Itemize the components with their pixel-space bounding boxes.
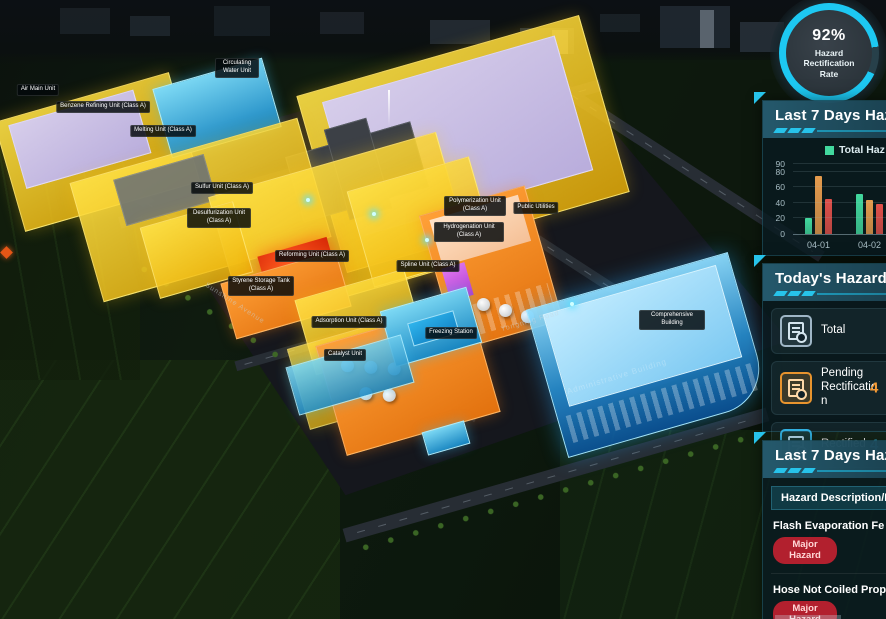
map-label-polymerization-unit[interactable]: Polymerization Unit (Class A)	[444, 196, 506, 216]
map-label-melting-unit[interactable]: Melting Unit (Class A)	[130, 125, 196, 137]
panel-header: Today's Hazard S	[763, 264, 886, 301]
slash-icon	[787, 468, 802, 473]
bar	[856, 194, 863, 234]
hazard-level-badge: Major Hazard	[773, 537, 837, 564]
slash-icon	[773, 128, 788, 133]
hazard-trend-chart: Total Haz 02040608090 04-0104-02	[763, 138, 886, 254]
panel-title: Today's Hazard S	[775, 270, 886, 287]
gridline	[793, 217, 886, 218]
header-decoration	[775, 468, 886, 473]
bar	[805, 218, 812, 234]
stat-label: Total	[821, 324, 881, 338]
light-flare	[388, 90, 390, 126]
panel-todays-hazard-statistics: Today's Hazard S Total Pending Rectifica…	[762, 263, 886, 432]
bar	[876, 204, 883, 234]
chart-y-axis: 02040608090	[763, 164, 789, 234]
y-tick-label: 20	[776, 213, 785, 223]
chart-legend[interactable]: Total Haz	[825, 144, 885, 156]
y-tick-label: 0	[780, 229, 785, 239]
slash-icon	[773, 468, 788, 473]
map-label-air-main-unit[interactable]: Air Main Unit	[17, 84, 59, 96]
slash-icon	[773, 291, 788, 296]
storage-tank	[499, 304, 512, 317]
city-building	[430, 20, 490, 44]
bar	[815, 176, 822, 234]
stat-value: 4	[870, 380, 878, 397]
map-label-sulfur-unit[interactable]: Sulfur Unit (Class A)	[191, 182, 253, 194]
panel-last-7-days-hazard-trend: Last 7 Days Haza Total Haz 02040608090 0…	[762, 100, 886, 256]
map-label-freezing-station[interactable]: Freezing Station	[425, 327, 477, 339]
hazard-description: Flash Evaporation Fe	[773, 520, 886, 532]
pending-document-icon	[780, 372, 812, 404]
gridline	[793, 202, 886, 203]
storage-tank	[477, 298, 490, 311]
hazard-description: Hose Not Coiled Prop	[773, 584, 886, 596]
bar-group: 04-01	[805, 164, 832, 234]
city-building	[130, 16, 170, 36]
slash-icon	[801, 291, 816, 296]
map-label-desulfurization-unit[interactable]: Desulfurization Unit (Class A)	[187, 208, 251, 228]
stat-row-pending-rectification[interactable]: Pending Rectification 4	[771, 361, 886, 415]
gauge-value: 92%	[812, 27, 846, 45]
x-tick-label: 04-01	[807, 240, 830, 250]
header-line	[817, 293, 886, 295]
digital-twin-dashboard: Circulating Water Unit Air Main Unit Ben…	[0, 0, 886, 619]
y-tick-label: 40	[776, 198, 785, 208]
header-line	[817, 130, 886, 132]
sparkle	[570, 302, 574, 306]
panel-last-7-days-hazard-list: Last 7 Days Haza Hazard Description/L Fl…	[762, 440, 886, 619]
map-label-catalyst-unit[interactable]: Catalyst Unit	[324, 349, 366, 361]
panel-header: Last 7 Days Haza	[763, 441, 886, 478]
map-label-adsorption-unit[interactable]: Adsorption Unit (Class A)	[311, 316, 386, 328]
city-building	[214, 6, 270, 36]
legend-swatch	[825, 146, 834, 155]
gauge-label: Hazard Rectification Rate	[797, 48, 861, 80]
y-tick-label: 60	[776, 182, 785, 192]
gridline	[793, 171, 886, 172]
city-tower	[700, 10, 714, 48]
slash-icon	[801, 128, 816, 133]
chart-plot-area: 04-0104-02	[793, 164, 886, 235]
map-label-benzene-refining-unit[interactable]: Benzene Refining Unit (Class A)	[56, 101, 150, 113]
map-label-comprehensive-building[interactable]: Comprehensive Building	[639, 310, 705, 330]
hazard-list-row[interactable]: Hose Not Coiled Prop Major Hazard	[771, 584, 886, 619]
header-decoration	[775, 128, 886, 133]
city-building	[320, 12, 364, 34]
slash-icon	[787, 291, 802, 296]
y-tick-label: 90	[776, 159, 785, 169]
gauge-ring: 92% Hazard Rectification Rate	[779, 3, 879, 103]
city-building	[600, 14, 640, 32]
hazard-rectification-gauge: 92% Hazard Rectification Rate	[770, 0, 886, 112]
header-line	[817, 470, 886, 472]
city-building	[60, 8, 110, 34]
map-label-hydrogenation-unit[interactable]: Hydrogenation Unit (Class A)	[434, 222, 504, 242]
map-label-circulating-water-unit[interactable]: Circulating Water Unit	[215, 58, 259, 78]
sparkle	[372, 212, 376, 216]
city-building	[660, 6, 730, 48]
hazard-list-row[interactable]: Flash Evaporation Fe Major Hazard	[771, 520, 886, 574]
gridline	[793, 186, 886, 187]
panel-header: Last 7 Days Haza	[763, 101, 886, 138]
slash-icon	[801, 468, 816, 473]
clipped-next-row	[775, 615, 841, 619]
sparkle	[306, 198, 310, 202]
bar-group: 04-02	[856, 164, 883, 234]
map-label-reforming-unit[interactable]: Reforming Unit (Class A)	[275, 250, 349, 262]
map-label-public-utilities[interactable]: Public Utilities	[513, 202, 558, 214]
gridline	[793, 163, 886, 164]
panel-title: Last 7 Days Haza	[775, 447, 886, 464]
table-column-header: Hazard Description/L	[771, 486, 886, 510]
slash-icon	[787, 128, 802, 133]
header-decoration	[775, 291, 886, 296]
map-label-spline-unit[interactable]: Spline Unit (Class A)	[396, 260, 459, 272]
stat-row-total[interactable]: Total	[771, 308, 886, 354]
map-label-styrene-storage-tank[interactable]: Styrene Storage Tank (Class A)	[228, 276, 294, 296]
panel-title: Last 7 Days Haza	[775, 107, 886, 124]
gauge-center: 92% Hazard Rectification Rate	[786, 10, 872, 96]
total-document-icon	[780, 315, 812, 347]
chart-groups: 04-0104-02	[793, 164, 886, 234]
legend-label: Total Haz	[839, 144, 885, 156]
panel-corner-icon	[754, 255, 766, 267]
x-tick-label: 04-02	[858, 240, 881, 250]
sparkle	[425, 238, 429, 242]
